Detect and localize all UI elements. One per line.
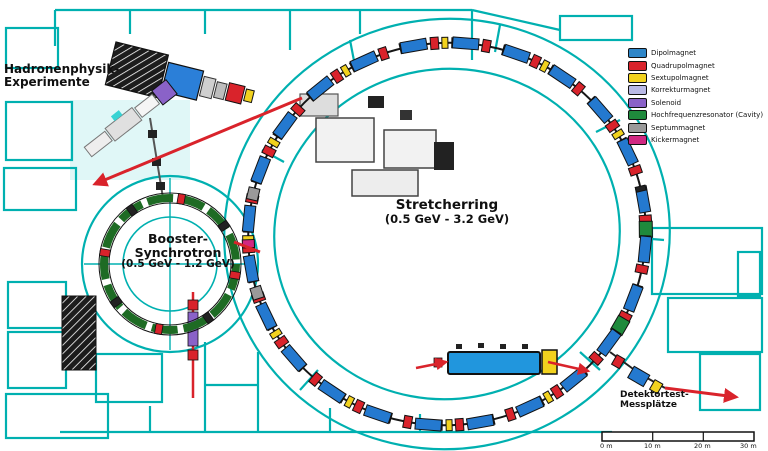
legend-label: Solenoid bbox=[651, 99, 681, 107]
booster-magnet bbox=[177, 193, 186, 204]
magnet-dipole bbox=[281, 345, 306, 372]
sextupole-swatch bbox=[628, 73, 647, 83]
legend-item-corrector: Korrekturmagnet bbox=[628, 84, 763, 96]
legend-item-rf: Hochfrequenzresonator (Cavity) bbox=[628, 109, 763, 121]
magnet-quadrupole bbox=[628, 165, 642, 177]
magnet-sextupole bbox=[340, 65, 351, 78]
scale-bar bbox=[602, 432, 754, 441]
magnet-quadrupole bbox=[481, 39, 491, 52]
magnet-dipole bbox=[400, 38, 428, 53]
magnet-dipole bbox=[548, 65, 576, 89]
magnet-quadrupole bbox=[262, 145, 276, 158]
magnet-quadrupole bbox=[430, 37, 439, 50]
legend-item-solenoid: Solenoid bbox=[628, 97, 763, 109]
legend-label: Hochfrequenzresonator (Cavity) bbox=[651, 111, 763, 119]
magnet-dipole bbox=[502, 44, 530, 63]
magnet-sextupole bbox=[543, 391, 554, 404]
legend-item-kicker: Kickermagnet bbox=[628, 134, 763, 146]
magnet-dipole bbox=[516, 396, 544, 417]
legend-label: Quadrupolmagnet bbox=[651, 62, 715, 70]
dipole-swatch bbox=[628, 48, 647, 58]
magnet-quadrupole bbox=[505, 407, 516, 421]
magnet-quadrupole bbox=[455, 418, 464, 431]
magnet-quadrupole bbox=[330, 69, 343, 83]
magnet-septum bbox=[246, 187, 259, 201]
scale-30: 30 m bbox=[740, 442, 757, 450]
booster-magnet bbox=[155, 323, 164, 334]
magnet-dipole bbox=[624, 284, 644, 312]
legend-label: Sextupolmagnet bbox=[651, 74, 709, 82]
legend-item-dipole: Dipolmagnet bbox=[628, 47, 763, 59]
hadron-experiments-label: Hadronenphysik- Experimente bbox=[4, 63, 134, 89]
legend-label: Kickermagnet bbox=[651, 136, 699, 144]
legend: Dipolmagnet Quadrupolmagnet Sextupolmagn… bbox=[628, 47, 763, 146]
rf-cavity bbox=[639, 221, 652, 237]
magnet-dipole bbox=[318, 380, 346, 404]
stretcher-energy: (0.5 GeV - 3.2 GeV) bbox=[348, 213, 546, 225]
scale-bar-labels: 0 m 10 m 20 m 30 m bbox=[598, 442, 760, 451]
magnet-dipole bbox=[597, 329, 621, 356]
experiment-dipole bbox=[448, 352, 540, 374]
solenoid-swatch bbox=[628, 98, 647, 108]
accelerator-floor-plan: Hadronenphysik- Experimente Booster- Syn… bbox=[0, 0, 768, 451]
magnet-quadrupole bbox=[403, 415, 413, 428]
stretcher-line1: Stretcherring bbox=[348, 198, 546, 213]
magnet-sextupole bbox=[344, 396, 354, 409]
interior-buildings bbox=[300, 94, 454, 196]
magnet-dipole bbox=[256, 302, 277, 330]
magnet-sextupole bbox=[442, 37, 448, 48]
booster-line1: Booster- bbox=[104, 232, 252, 246]
magnet-dipole bbox=[350, 51, 378, 72]
sextupole bbox=[244, 89, 255, 103]
experiment-magnet bbox=[434, 343, 557, 374]
magnet-sextupole bbox=[539, 60, 549, 73]
magnet-quadrupole bbox=[635, 264, 648, 274]
legend-label: Dipolmagnet bbox=[651, 49, 696, 57]
booster-label: Booster- Synchrotron (0.5 GeV - 1.2 GeV) bbox=[104, 232, 252, 270]
magnet-quadrupole bbox=[352, 399, 364, 413]
magnet-dipole bbox=[415, 418, 442, 431]
booster-energy: (0.5 GeV - 1.2 GeV) bbox=[104, 259, 252, 270]
magnet-quadrupole bbox=[529, 54, 541, 68]
quadrupole bbox=[225, 83, 245, 104]
quadrupole-swatch bbox=[628, 61, 647, 71]
legend-item-sextupole: Sextupolmagnet bbox=[628, 72, 763, 84]
magnet-dipole bbox=[273, 112, 297, 139]
booster-line2: Synchrotron bbox=[104, 246, 252, 260]
magnet-dipole bbox=[587, 97, 612, 124]
scale-20: 20 m bbox=[694, 442, 711, 450]
legend-item-septum: Septummagnet bbox=[628, 121, 763, 133]
beamline-element bbox=[214, 82, 228, 100]
magnet-dipole bbox=[242, 205, 255, 232]
legend-item-quadrupole: Quadrupolmagnet bbox=[628, 59, 763, 71]
magnet-sextupole bbox=[268, 137, 281, 148]
septum-swatch bbox=[628, 123, 647, 133]
stretcher-label: Stretcherring (0.5 GeV - 3.2 GeV) bbox=[348, 198, 546, 225]
rf-swatch bbox=[628, 110, 647, 120]
hadron-experiments-line1: Hadronenphysik- bbox=[4, 63, 134, 76]
corrector-swatch bbox=[628, 85, 647, 95]
magnet-quadrupole bbox=[550, 385, 563, 399]
scale-10: 10 m bbox=[644, 442, 661, 450]
booster-magnet bbox=[229, 271, 240, 280]
legend-label: Korrekturmagnet bbox=[651, 86, 710, 94]
southwest-beamline bbox=[62, 292, 198, 398]
detector-test-label: Detektortest- Messplätze bbox=[620, 390, 724, 411]
scale-0: 0 m bbox=[600, 442, 613, 450]
magnet-quadrupole bbox=[378, 47, 389, 61]
legend-label: Septummagnet bbox=[651, 124, 705, 132]
detector-test-line2: Messplätze bbox=[620, 400, 724, 410]
kicker-swatch bbox=[628, 135, 647, 145]
magnet-dipole bbox=[364, 405, 392, 424]
magnet-dipole bbox=[466, 414, 494, 429]
magnet-sextupole bbox=[446, 420, 452, 431]
magnet-dipole bbox=[452, 37, 479, 50]
magnet-dipole bbox=[251, 156, 271, 184]
detector-test-line1: Detektortest- bbox=[620, 390, 724, 400]
hadron-experiments-line2: Experimente bbox=[4, 76, 134, 89]
magnet-dipole bbox=[638, 236, 651, 263]
